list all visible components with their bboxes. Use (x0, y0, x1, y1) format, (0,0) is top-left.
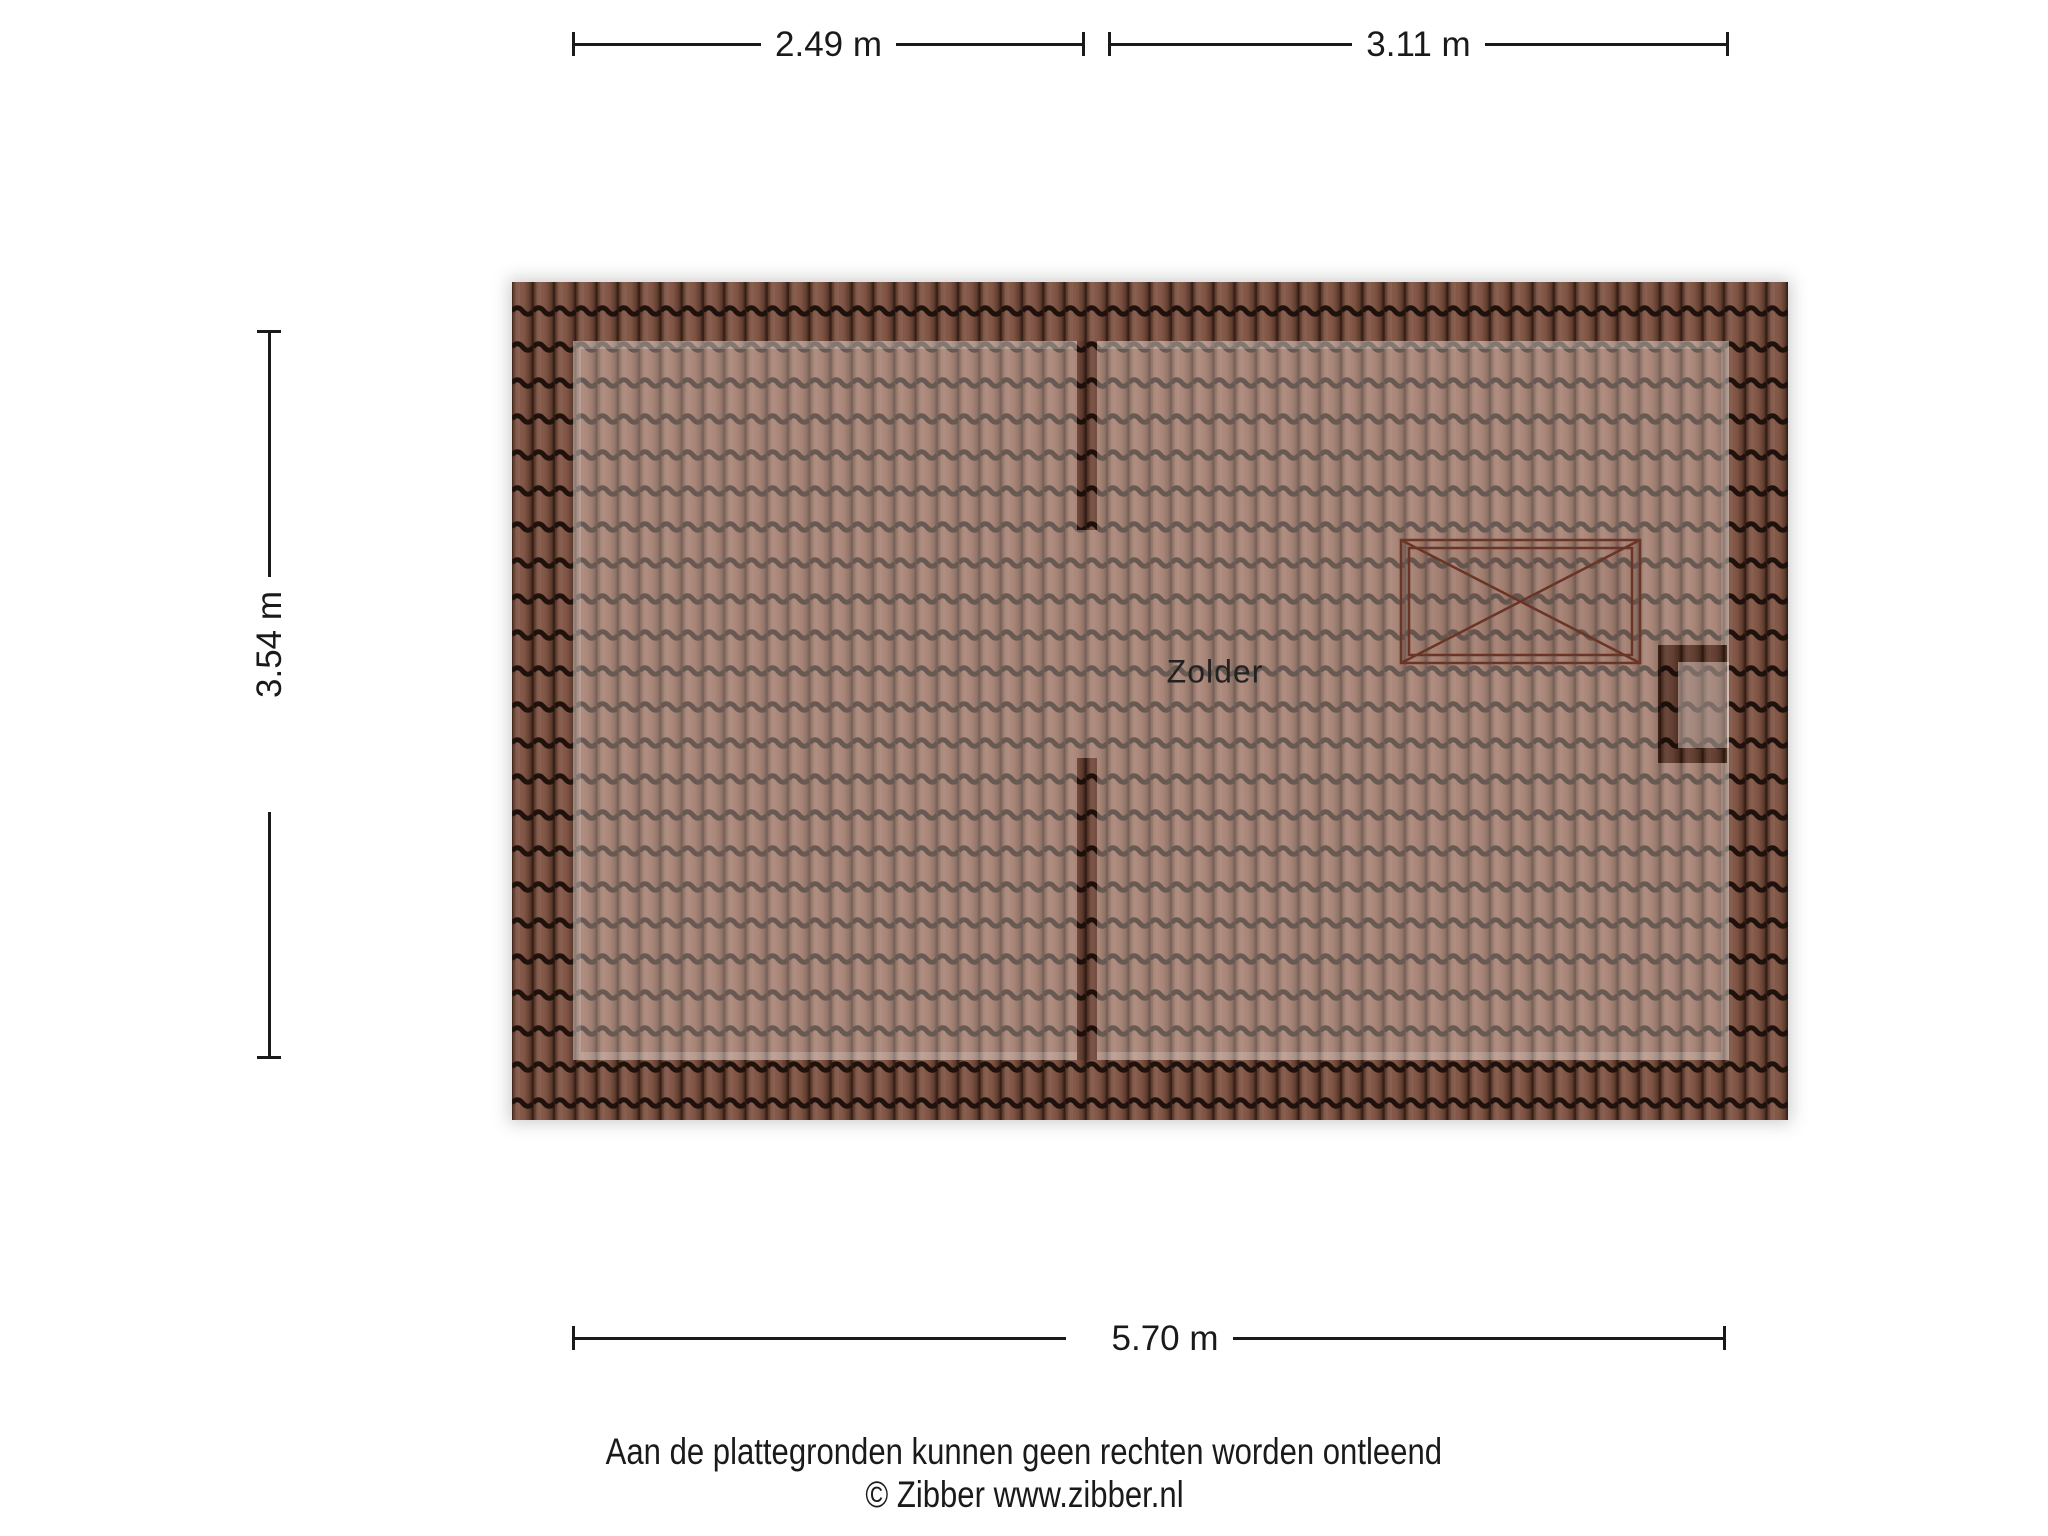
dimension-tick (1082, 32, 1085, 56)
attic-interior-area (573, 341, 1729, 1060)
dimension-line (896, 43, 1082, 46)
dimension-label-top-right: 3.11 m (1352, 27, 1484, 62)
roof-plan-drawing (512, 282, 1788, 1120)
dimension-line (575, 1337, 1066, 1340)
dimension-line (575, 43, 761, 46)
dimension-line (268, 333, 271, 577)
dimension-top-left: 2.49 m (572, 24, 1085, 64)
wall-segment-top (1077, 341, 1097, 530)
dimension-line (1111, 43, 1352, 46)
dimension-line (1485, 43, 1726, 46)
dimension-tick (1726, 32, 1729, 56)
dimension-line (268, 812, 271, 1056)
dimension-bottom: 5.70 m (572, 1318, 1726, 1358)
dimension-label-left: 3.54 m (252, 577, 287, 712)
dimension-tick (257, 1056, 281, 1059)
floor-plan-canvas: 2.49 m 3.11 m 3.54 m 5.70 m (0, 0, 2048, 1536)
dimension-left: 3.54 m (249, 330, 289, 1059)
dimension-line (1233, 1337, 1724, 1340)
dimension-tick (1723, 1326, 1726, 1350)
dimension-label-top-left: 2.49 m (761, 27, 896, 62)
footer-disclaimer: Aan de plattegronden kunnen geen rechten… (0, 1430, 2048, 1473)
dimension-top-right: 3.11 m (1108, 24, 1729, 64)
dimension-label-bottom: 5.70 m (1098, 1321, 1233, 1356)
wall-segment-bottom (1077, 758, 1097, 1060)
roof-window (1401, 540, 1640, 663)
roof-plan (512, 282, 1788, 1120)
room-label: Zolder (1167, 654, 1264, 691)
chimney (1658, 645, 1729, 763)
footer: Aan de plattegronden kunnen geen rechten… (0, 1430, 2048, 1516)
footer-copyright: © Zibber www.zibber.nl (0, 1473, 2048, 1516)
